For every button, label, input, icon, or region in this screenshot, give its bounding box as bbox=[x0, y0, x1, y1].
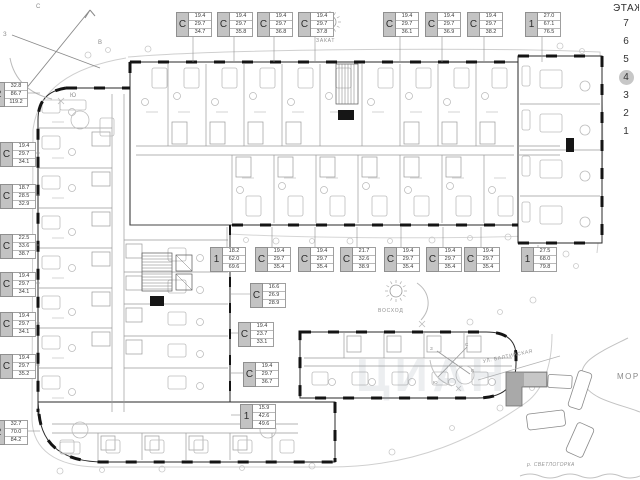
unit-area: 33.6 bbox=[13, 243, 35, 251]
unit-area: 29.7 bbox=[13, 281, 35, 289]
unit-area: 35.4 bbox=[311, 264, 333, 271]
floor-selector: ЭТАЖ 7654321 bbox=[613, 3, 640, 140]
sea-label: МОРЕ bbox=[617, 372, 640, 381]
unit-type: 1 bbox=[210, 247, 223, 272]
floor-number: 7 bbox=[619, 16, 634, 31]
unit-area: 29.7 bbox=[439, 256, 461, 264]
unit-area: 29.7 bbox=[13, 363, 35, 371]
unit-label-box[interactable]: С19.429.734.1 bbox=[0, 312, 36, 337]
unit-type: С bbox=[250, 283, 263, 308]
floor-number: 1 bbox=[619, 124, 634, 139]
unit-label-box[interactable]: 127.568.079.8 bbox=[521, 247, 557, 272]
unit-type: С bbox=[0, 184, 13, 209]
unit-area: 19.4 bbox=[480, 13, 502, 21]
unit-area: 16.6 bbox=[263, 284, 285, 292]
unit-area: 28.9 bbox=[263, 300, 285, 307]
unit-area: 23.7 bbox=[251, 331, 273, 339]
unit-type: С bbox=[425, 12, 438, 37]
unit-area: 119.2 bbox=[5, 99, 27, 106]
unit-area: 86.7 bbox=[5, 91, 27, 99]
unit-area: 29.7 bbox=[13, 151, 35, 159]
unit-area: 35.4 bbox=[268, 264, 290, 271]
unit-area: 29.7 bbox=[311, 21, 333, 29]
unit-type: С bbox=[0, 272, 13, 297]
unit-area: 28.5 bbox=[13, 193, 35, 201]
floor-number: 3 bbox=[619, 88, 634, 103]
unit-label-box[interactable]: С19.429.735.4 bbox=[298, 247, 334, 272]
unit-area: 32.9 bbox=[13, 201, 35, 208]
unit-area: 19.4 bbox=[439, 248, 461, 256]
unit-type: С bbox=[243, 362, 256, 387]
unit-area: 29.7 bbox=[396, 21, 418, 29]
unit-area: 49.6 bbox=[253, 421, 275, 428]
unit-area: 38.2 bbox=[480, 29, 502, 36]
unit-label-box[interactable]: 118.262.069.6 bbox=[210, 247, 246, 272]
floor-item-1[interactable]: 1 bbox=[613, 122, 639, 140]
unit-label-box[interactable]: С19.429.734.1 bbox=[0, 142, 36, 167]
unit-area: 35.4 bbox=[477, 264, 499, 271]
floor-item-2[interactable]: 2 bbox=[613, 104, 639, 122]
floor-plan: СВЮЗСВЮЗ bbox=[0, 0, 640, 480]
unit-area: 68.0 bbox=[534, 256, 556, 264]
unit-area: 76.5 bbox=[538, 29, 560, 36]
unit-area: 21.7 bbox=[353, 248, 375, 256]
floor-plan-page: СВЮЗСВЮЗ ЦИАН С19.429.734.7С19.429.735.8… bbox=[0, 0, 640, 480]
sunrise-icon bbox=[385, 280, 428, 327]
unit-label-box[interactable]: С22.533.638.7 bbox=[0, 234, 36, 259]
unit-area: 29.7 bbox=[256, 371, 278, 379]
unit-label-box[interactable]: С19.429.738.2 bbox=[467, 12, 503, 37]
floor-number: 2 bbox=[619, 106, 634, 121]
unit-area: 22.5 bbox=[13, 235, 35, 243]
unit-area: 32.8 bbox=[5, 83, 27, 91]
unit-area: 29.7 bbox=[397, 256, 419, 264]
unit-area: 19.4 bbox=[189, 13, 211, 21]
unit-area: 19.4 bbox=[397, 248, 419, 256]
unit-area: 18.7 bbox=[13, 185, 35, 193]
unit-type: С bbox=[257, 12, 270, 37]
unit-area: 36.7 bbox=[256, 379, 278, 386]
floor-list: 7654321 bbox=[613, 14, 640, 140]
unit-area: 29.7 bbox=[230, 21, 252, 29]
unit-label-box[interactable]: С19.423.733.1 bbox=[238, 322, 274, 347]
floor-item-5[interactable]: 5 bbox=[613, 50, 639, 68]
unit-type: С bbox=[383, 12, 396, 37]
unit-type: С bbox=[238, 322, 251, 347]
unit-area: 18.2 bbox=[223, 248, 245, 256]
unit-label-box[interactable]: 115.942.649.6 bbox=[240, 404, 276, 429]
unit-type: С bbox=[0, 354, 13, 379]
unit-area: 35.8 bbox=[230, 29, 252, 36]
unit-area: 34.1 bbox=[13, 289, 35, 296]
unit-type: С bbox=[340, 247, 353, 272]
unit-area: 62.0 bbox=[223, 256, 245, 264]
floor-item-3[interactable]: 3 bbox=[613, 86, 639, 104]
unit-type: С bbox=[384, 247, 397, 272]
unit-area: 27.0 bbox=[538, 13, 560, 21]
river-label: р. СВЕТЛОГОРКА bbox=[527, 462, 575, 468]
unit-area: 19.4 bbox=[477, 248, 499, 256]
unit-area: 29.7 bbox=[270, 21, 292, 29]
unit-label-box[interactable]: С19.429.735.4 bbox=[464, 247, 500, 272]
unit-area: 32.6 bbox=[353, 256, 375, 264]
unit-area: 84.2 bbox=[5, 437, 27, 444]
unit-label-box[interactable]: С19.429.735.8 bbox=[217, 12, 253, 37]
unit-area: 38.9 bbox=[353, 264, 375, 271]
floor-number: 4 bbox=[619, 70, 634, 85]
unit-area: 26.9 bbox=[263, 292, 285, 300]
svg-text:З: З bbox=[3, 32, 7, 38]
unit-area: 36.1 bbox=[396, 29, 418, 36]
unit-area: 19.4 bbox=[13, 143, 35, 151]
unit-label-box[interactable]: С19.429.735.2 bbox=[0, 354, 36, 379]
unit-area: 32.7 bbox=[5, 421, 27, 429]
unit-type: С bbox=[0, 142, 13, 167]
unit-area: 27.5 bbox=[534, 248, 556, 256]
floor-number: 6 bbox=[619, 34, 634, 49]
unit-type: С bbox=[426, 247, 439, 272]
floor-selector-title: ЭТАЖ bbox=[613, 3, 639, 14]
unit-label-box[interactable]: С21.732.638.9 bbox=[340, 247, 376, 272]
unit-area: 34.7 bbox=[189, 29, 211, 36]
unit-label-box[interactable]: С19.429.737.8 bbox=[298, 12, 334, 37]
unit-area: 79.8 bbox=[534, 264, 556, 271]
unit-label-box[interactable]: С19.429.736.8 bbox=[257, 12, 293, 37]
unit-type: С bbox=[0, 234, 13, 259]
floor-item-6[interactable]: 6 bbox=[613, 32, 639, 50]
unit-area: 19.4 bbox=[311, 248, 333, 256]
unit-label-box[interactable]: С19.429.735.4 bbox=[426, 247, 462, 272]
unit-area: 19.4 bbox=[13, 313, 35, 321]
unit-type: С bbox=[217, 12, 230, 37]
svg-text:С: С bbox=[36, 4, 41, 10]
unit-area: 38.7 bbox=[13, 251, 35, 258]
unit-type: 1 bbox=[240, 404, 253, 429]
unit-type: С bbox=[176, 12, 189, 37]
unit-area: 36.9 bbox=[438, 29, 460, 36]
unit-label-box[interactable]: С19.429.736.9 bbox=[425, 12, 461, 37]
watermark: ЦИАН bbox=[356, 348, 509, 402]
unit-area: 36.8 bbox=[270, 29, 292, 36]
unit-area: 15.9 bbox=[253, 405, 275, 413]
svg-text:В: В bbox=[98, 40, 102, 46]
unit-area: 19.4 bbox=[230, 13, 252, 21]
unit-label-box[interactable]: 232.770.084.2 bbox=[0, 420, 28, 445]
unit-area: 35.4 bbox=[397, 264, 419, 271]
unit-area: 69.6 bbox=[223, 264, 245, 271]
unit-label-box[interactable]: С19.429.736.7 bbox=[243, 362, 279, 387]
unit-area: 29.7 bbox=[268, 256, 290, 264]
unit-label-box[interactable]: С19.429.734.7 bbox=[176, 12, 212, 37]
unit-area: 29.7 bbox=[477, 256, 499, 264]
unit-label-box[interactable]: С19.429.735.4 bbox=[384, 247, 420, 272]
floor-number: 5 bbox=[619, 52, 634, 67]
unit-area: 29.7 bbox=[480, 21, 502, 29]
unit-area: 35.2 bbox=[13, 371, 35, 378]
unit-area: 29.7 bbox=[438, 21, 460, 29]
unit-area: 70.0 bbox=[5, 429, 27, 437]
unit-label-box[interactable]: С18.728.532.9 bbox=[0, 184, 36, 209]
unit-area: 33.1 bbox=[251, 339, 273, 346]
sunset-label: ЗАКАТ bbox=[316, 38, 335, 44]
unit-label-box[interactable]: С19.429.736.1 bbox=[383, 12, 419, 37]
unit-area: 19.4 bbox=[270, 13, 292, 21]
unit-area: 29.7 bbox=[13, 321, 35, 329]
unit-type: 1 bbox=[521, 247, 534, 272]
unit-label-box[interactable]: С16.626.928.9 bbox=[250, 283, 286, 308]
unit-area: 19.4 bbox=[311, 13, 333, 21]
unit-area: 34.1 bbox=[13, 329, 35, 336]
unit-area: 19.4 bbox=[256, 363, 278, 371]
unit-area: 35.4 bbox=[439, 264, 461, 271]
unit-area: 34.1 bbox=[13, 159, 35, 166]
unit-area: 19.4 bbox=[268, 248, 290, 256]
unit-label-box[interactable]: 232.886.7119.2 bbox=[0, 82, 28, 107]
unit-area: 67.1 bbox=[538, 21, 560, 29]
unit-label-box[interactable]: С19.429.734.1 bbox=[0, 272, 36, 297]
unit-area: 37.8 bbox=[311, 29, 333, 36]
sunrise-label: ВОСХОД bbox=[378, 308, 404, 314]
svg-text:Ю: Ю bbox=[70, 93, 76, 99]
floor-item-7[interactable]: 7 bbox=[613, 14, 639, 32]
unit-area: 19.4 bbox=[13, 273, 35, 281]
unit-type: С bbox=[255, 247, 268, 272]
unit-type: С bbox=[298, 12, 311, 37]
unit-area: 29.7 bbox=[189, 21, 211, 29]
unit-area: 19.4 bbox=[13, 355, 35, 363]
floor-item-4[interactable]: 4 bbox=[613, 68, 639, 86]
unit-label-box[interactable]: С19.429.735.4 bbox=[255, 247, 291, 272]
unit-label-box[interactable]: 127.067.176.5 bbox=[525, 12, 561, 37]
unit-area: 19.4 bbox=[438, 13, 460, 21]
unit-area: 42.6 bbox=[253, 413, 275, 421]
unit-area: 19.4 bbox=[251, 323, 273, 331]
unit-area: 19.4 bbox=[396, 13, 418, 21]
unit-type: С bbox=[464, 247, 477, 272]
unit-area: 29.7 bbox=[311, 256, 333, 264]
unit-type: 1 bbox=[525, 12, 538, 37]
unit-type: С bbox=[298, 247, 311, 272]
unit-type: С bbox=[0, 312, 13, 337]
unit-type: С bbox=[467, 12, 480, 37]
